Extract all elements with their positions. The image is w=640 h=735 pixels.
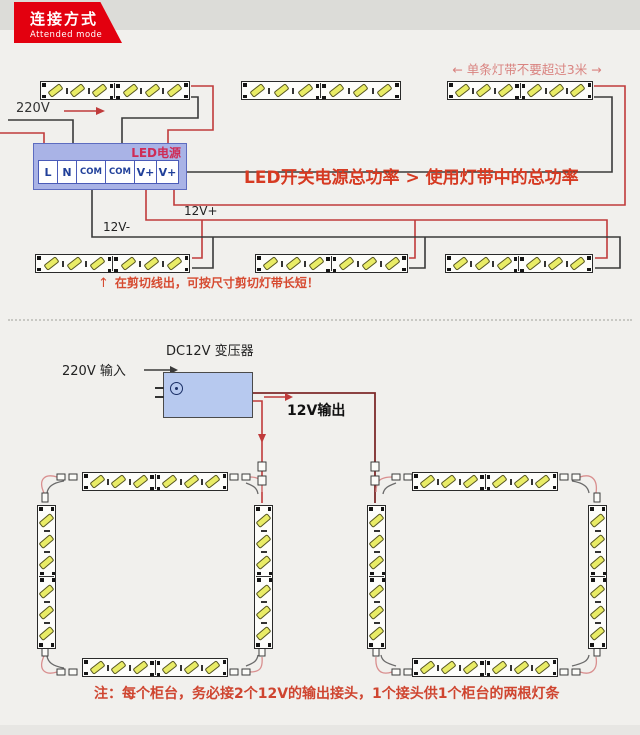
- solder-dot: [382, 572, 386, 576]
- led-chip: [419, 474, 435, 489]
- solder-dots: [369, 578, 386, 582]
- jumper-wire: [572, 481, 589, 493]
- led-chip: [70, 83, 86, 98]
- strip-dash: [139, 261, 141, 267]
- strip-dash: [292, 88, 294, 94]
- solder-dots: [316, 83, 320, 100]
- solder-dots: [116, 83, 120, 100]
- led-chip: [249, 83, 265, 98]
- led-chip: [273, 83, 289, 98]
- led-chip: [143, 256, 159, 271]
- solder-dot: [157, 673, 161, 677]
- cut-connector: [326, 256, 336, 271]
- strip-dash: [472, 88, 474, 94]
- terminal-label: V+: [137, 166, 155, 179]
- solder-dots: [255, 643, 272, 647]
- strip-dash: [162, 261, 164, 267]
- led-chip: [369, 513, 385, 528]
- solder-dot: [402, 268, 406, 272]
- solder-dot: [257, 578, 261, 582]
- solder-dot: [150, 673, 154, 677]
- led-chip: [162, 474, 178, 489]
- solder-dot: [382, 578, 386, 582]
- solder-dot: [514, 269, 518, 273]
- solder-dots: [414, 473, 418, 490]
- solder-dots: [402, 255, 406, 272]
- led-chip: [285, 256, 301, 271]
- solder-dot: [514, 257, 518, 261]
- strip-dash: [459, 479, 461, 485]
- strip-dash: [107, 665, 109, 671]
- solder-dot: [414, 474, 418, 478]
- led-chip: [452, 256, 468, 271]
- strip-dash: [459, 665, 461, 671]
- solder-dot: [51, 507, 55, 511]
- led-chip: [548, 256, 564, 271]
- led-chip: [526, 256, 542, 271]
- solder-dot: [157, 487, 161, 491]
- solder-dots: [395, 82, 399, 99]
- led-chip: [548, 83, 564, 98]
- strip-dash: [374, 551, 380, 553]
- solder-dots: [255, 507, 272, 511]
- led-chip: [183, 660, 199, 675]
- solder-dot: [369, 643, 373, 647]
- solder-dots: [487, 474, 491, 491]
- solder-dots: [553, 473, 557, 490]
- bus-12v-plus: [146, 186, 607, 258]
- led-chip: [339, 256, 355, 271]
- solder-dot: [553, 660, 557, 664]
- solder-dots: [223, 473, 227, 490]
- strip-dash: [374, 601, 380, 603]
- led-chip: [441, 660, 457, 675]
- cut-connector: [480, 474, 490, 489]
- solder-dots: [150, 474, 154, 491]
- led-chip: [308, 256, 324, 271]
- solder-dots: [447, 255, 451, 272]
- strip-dash: [140, 88, 142, 94]
- led-chip: [384, 256, 400, 271]
- solder-dots: [449, 82, 453, 99]
- led-strip-loop-left-right: [254, 505, 273, 649]
- cut-connector: [110, 83, 120, 98]
- bus-minus-label: 12V-: [103, 220, 130, 234]
- led-strip-loop-right-right: [588, 505, 607, 649]
- solder-dots: [243, 82, 247, 99]
- led-chip: [256, 534, 272, 549]
- led-chip: [166, 83, 182, 98]
- solder-dots: [515, 83, 519, 100]
- solder-dots: [108, 256, 112, 273]
- led-chip: [590, 534, 606, 549]
- solder-dot: [40, 572, 44, 576]
- psu-label: LED电源: [131, 144, 181, 161]
- solder-dots: [114, 256, 118, 273]
- solder-dot: [316, 84, 320, 88]
- strip-dash: [129, 479, 131, 485]
- solder-dot: [588, 95, 592, 99]
- wire-row1-minus-long: [187, 97, 612, 172]
- led-strip-row1-1: [40, 81, 190, 100]
- strip-dash: [107, 479, 109, 485]
- max-length-note: ← 单条灯带不要超过3米 →: [438, 59, 616, 78]
- cut-connector: [514, 256, 524, 271]
- solder-dot: [110, 84, 114, 88]
- cut-connector: [256, 572, 271, 582]
- solder-dot: [116, 84, 120, 88]
- strip-dash: [531, 479, 533, 485]
- solder-dot: [414, 660, 418, 664]
- solder-dot: [84, 660, 88, 664]
- solder-dots: [589, 643, 606, 647]
- strip-dash: [180, 479, 182, 485]
- solder-dot: [395, 95, 399, 99]
- led-chip: [256, 626, 272, 641]
- solder-dots: [38, 643, 55, 647]
- solder-dots: [333, 256, 337, 273]
- solder-dot: [520, 269, 524, 273]
- strip-dash: [268, 88, 270, 94]
- strip-dash: [437, 665, 439, 671]
- led-chip: [166, 256, 182, 271]
- led-chip: [183, 474, 199, 489]
- strip-dash: [162, 88, 164, 94]
- led-strip-row1-3: [447, 81, 593, 100]
- led-chip: [122, 83, 138, 98]
- solder-dots: [480, 474, 484, 491]
- solder-dot: [370, 578, 374, 582]
- strip-dash: [261, 551, 267, 553]
- solder-dot: [487, 487, 491, 491]
- solder-dot: [590, 643, 594, 647]
- strip-dash: [357, 261, 359, 267]
- solder-dot: [480, 661, 484, 665]
- cut-line: [331, 256, 332, 271]
- solder-dots: [553, 659, 557, 676]
- psu-terminal: L: [38, 160, 58, 184]
- solder-dot: [487, 673, 491, 677]
- strip-dash: [374, 530, 380, 532]
- solder-dot: [591, 572, 595, 576]
- psu-terminal: V+: [156, 160, 179, 184]
- strip-dash: [372, 88, 374, 94]
- solder-dot: [257, 268, 261, 272]
- jumper-wire: [47, 656, 64, 668]
- solder-dots: [157, 660, 161, 677]
- solder-dot: [402, 256, 406, 260]
- cut-connector: [369, 572, 384, 582]
- led-chip: [256, 605, 272, 620]
- solder-dot: [157, 661, 161, 665]
- terminal-label: COM: [109, 167, 131, 177]
- solder-dot: [268, 507, 272, 511]
- solder-dot: [447, 268, 451, 272]
- solder-dot: [480, 673, 484, 677]
- strip-dash: [470, 261, 472, 267]
- solder-dot: [51, 643, 55, 647]
- solder-dot: [243, 95, 247, 99]
- strip-dash: [66, 88, 68, 94]
- solder-dots: [588, 82, 592, 99]
- strip-dash: [545, 88, 547, 94]
- solder-dot: [223, 474, 227, 478]
- solder-dots: [39, 572, 56, 576]
- solder-dots: [84, 659, 88, 676]
- led-chip: [497, 83, 513, 98]
- solder-dots: [150, 660, 154, 677]
- led-chip: [462, 474, 478, 489]
- led-chip: [441, 474, 457, 489]
- solder-dot: [515, 96, 519, 100]
- solder-dot: [39, 507, 43, 511]
- cut-line: [320, 83, 321, 98]
- led-chip: [263, 256, 279, 271]
- solder-dot: [520, 257, 524, 261]
- input-prong: [155, 396, 164, 398]
- strip-dash: [129, 665, 131, 671]
- terminal-label: V+: [159, 166, 177, 179]
- solder-dot: [480, 475, 484, 479]
- cut-note-text: 在剪切线出，可按尺寸剪切灯带长短！: [115, 276, 319, 290]
- cut-line: [518, 256, 519, 271]
- solder-dot: [223, 672, 227, 676]
- bottom-note: 注：每个柜台，务必接2个12V的输出接头，1个接头供1个柜台的两根灯条: [94, 683, 560, 703]
- led-strip-loop-left-bottom: [82, 658, 228, 677]
- solder-dot: [114, 269, 118, 273]
- solder-dot: [185, 268, 189, 272]
- cut-line: [590, 576, 605, 577]
- solder-dot: [602, 643, 606, 647]
- led-strip-row2-1: [35, 254, 190, 273]
- led-strip-row2-2: [255, 254, 408, 273]
- solder-dots: [589, 507, 606, 511]
- solder-dots: [42, 82, 46, 99]
- solder-dot: [414, 486, 418, 490]
- solder-dot: [322, 84, 326, 88]
- led-chip: [256, 555, 272, 570]
- strip-dash: [494, 88, 496, 94]
- led-chip: [535, 474, 551, 489]
- transformer-input-label: 220V 输入: [62, 360, 126, 379]
- psu-terminal: COM: [105, 160, 135, 184]
- led-chip: [39, 626, 55, 641]
- solder-dot: [487, 661, 491, 665]
- led-chip: [39, 534, 55, 549]
- led-chip: [162, 660, 178, 675]
- solder-dot: [326, 257, 330, 261]
- jumper-wire: [47, 481, 64, 493]
- cut-line: [155, 474, 156, 489]
- solder-dot: [150, 475, 154, 479]
- strip-dash: [595, 622, 601, 624]
- solder-dot: [381, 643, 385, 647]
- led-chip: [492, 474, 508, 489]
- solder-dots: [369, 572, 386, 576]
- output-down-arrow-head: [258, 434, 266, 443]
- cut-line: [485, 660, 486, 675]
- strip-dash: [566, 88, 568, 94]
- led-chip: [361, 256, 377, 271]
- psu-terminal: COM: [76, 160, 106, 184]
- solder-dot: [268, 643, 272, 647]
- solder-dot: [108, 257, 112, 261]
- terminal-label: L: [44, 166, 51, 179]
- led-chip: [476, 83, 492, 98]
- solder-dots: [184, 82, 188, 99]
- page: 连接方式 Attended mode: [0, 0, 640, 735]
- led-chip: [590, 513, 606, 528]
- solder-dot: [522, 84, 526, 88]
- strip-dash: [510, 665, 512, 671]
- led-chip: [256, 584, 272, 599]
- strip-dash: [261, 601, 267, 603]
- solder-dot: [603, 572, 607, 576]
- strip-dash: [201, 665, 203, 671]
- solder-dot: [256, 507, 260, 511]
- solder-dots: [38, 507, 55, 511]
- psu-terminal: N: [57, 160, 77, 184]
- solder-dots: [84, 473, 88, 490]
- solder-dot: [603, 578, 607, 582]
- solder-dot: [42, 83, 46, 87]
- led-chip: [39, 513, 55, 528]
- solder-dots: [514, 256, 518, 273]
- strip-dash: [595, 551, 601, 553]
- solder-dot: [370, 572, 374, 576]
- solder-dot: [553, 474, 557, 478]
- strip-dash: [437, 479, 439, 485]
- strip-dash: [44, 601, 50, 603]
- led-chip: [48, 83, 64, 98]
- strip-dash: [201, 479, 203, 485]
- mains-voltage-label: 220V: [16, 101, 50, 116]
- solder-dot: [395, 83, 399, 87]
- led-chip: [454, 83, 470, 98]
- cut-connector: [39, 572, 54, 582]
- jumper-wire: [246, 655, 258, 666]
- solder-dot: [223, 486, 227, 490]
- led-chip: [513, 660, 529, 675]
- strip-dash: [85, 261, 87, 267]
- strip-dash: [281, 261, 283, 267]
- led-chip: [329, 83, 345, 98]
- solder-dot: [223, 660, 227, 664]
- solder-dot: [333, 257, 337, 261]
- solder-dot: [84, 474, 88, 478]
- led-chip: [66, 256, 82, 271]
- solder-dot: [553, 486, 557, 490]
- strip-dash: [595, 601, 601, 603]
- power-rule-text: LED开关电源总功率 > 使用灯带中的总功率: [244, 163, 579, 188]
- bus-minus-branch-2: [409, 237, 425, 268]
- strip-dash: [44, 530, 50, 532]
- cut-connector: [150, 660, 160, 675]
- solder-dot: [269, 572, 273, 576]
- led-strip-loop-right-top: [412, 472, 558, 491]
- led-chip: [474, 256, 490, 271]
- solder-dot: [116, 96, 120, 100]
- solder-dots: [487, 660, 491, 677]
- solder-dot: [257, 572, 261, 576]
- led-chip: [369, 605, 385, 620]
- up-arrow-icon: ↑: [98, 276, 109, 291]
- cut-connector: [515, 83, 525, 98]
- solder-dot: [480, 487, 484, 491]
- solder-dot: [487, 475, 491, 479]
- strip-dash: [88, 88, 90, 94]
- cut-line-note: ↑在剪切线出，可按尺寸剪切灯带长短！: [98, 274, 319, 291]
- solder-dot: [553, 672, 557, 676]
- solder-dot: [587, 268, 591, 272]
- led-strip-row2-3: [445, 254, 593, 273]
- led-chip: [590, 626, 606, 641]
- solder-dot: [369, 507, 373, 511]
- led-chip: [369, 534, 385, 549]
- solder-dot: [108, 269, 112, 273]
- jumper-wire: [572, 655, 589, 666]
- cut-line: [155, 660, 156, 675]
- solder-dots: [520, 256, 524, 273]
- strip-dash: [261, 622, 267, 624]
- solder-dots: [39, 578, 56, 582]
- led-chip: [92, 83, 108, 98]
- input-prong: [155, 387, 164, 389]
- strip-dash: [566, 261, 568, 267]
- solder-dot: [449, 95, 453, 99]
- psu-terminal: V+: [134, 160, 157, 184]
- solder-dot: [150, 661, 154, 665]
- solder-dot: [269, 578, 273, 582]
- transformer-output-label: 12V输出: [287, 400, 345, 420]
- solder-dots: [590, 572, 607, 576]
- led-strip-row1-2: [241, 81, 401, 100]
- solder-dots: [256, 578, 273, 582]
- led-strip-loop-left-left: [37, 505, 56, 649]
- cut-connector: [480, 660, 490, 675]
- connector-plugs: [42, 462, 600, 675]
- solder-dot: [114, 257, 118, 261]
- strip-dash: [180, 665, 182, 671]
- bus-plus-label: 12V+: [184, 204, 218, 218]
- strip-dash: [348, 88, 350, 94]
- solder-dots: [223, 659, 227, 676]
- cut-connector: [316, 83, 326, 98]
- solder-dot: [587, 256, 591, 260]
- solder-dot: [110, 96, 114, 100]
- solder-dot: [184, 95, 188, 99]
- led-chip: [492, 660, 508, 675]
- led-chip: [513, 474, 529, 489]
- led-chip: [132, 474, 148, 489]
- led-chip: [39, 555, 55, 570]
- led-chip: [205, 474, 221, 489]
- solder-dots: [185, 255, 189, 272]
- led-chip: [120, 256, 136, 271]
- led-chip: [590, 605, 606, 620]
- led-chip: [590, 555, 606, 570]
- strip-dash: [261, 530, 267, 532]
- led-chip: [111, 660, 127, 675]
- strip-dash: [595, 530, 601, 532]
- solder-dot: [257, 256, 261, 260]
- led-chip: [369, 626, 385, 641]
- strip-dash: [544, 261, 546, 267]
- led-chip: [569, 256, 585, 271]
- led-chip: [369, 584, 385, 599]
- cut-line: [114, 83, 115, 98]
- solder-dot: [84, 486, 88, 490]
